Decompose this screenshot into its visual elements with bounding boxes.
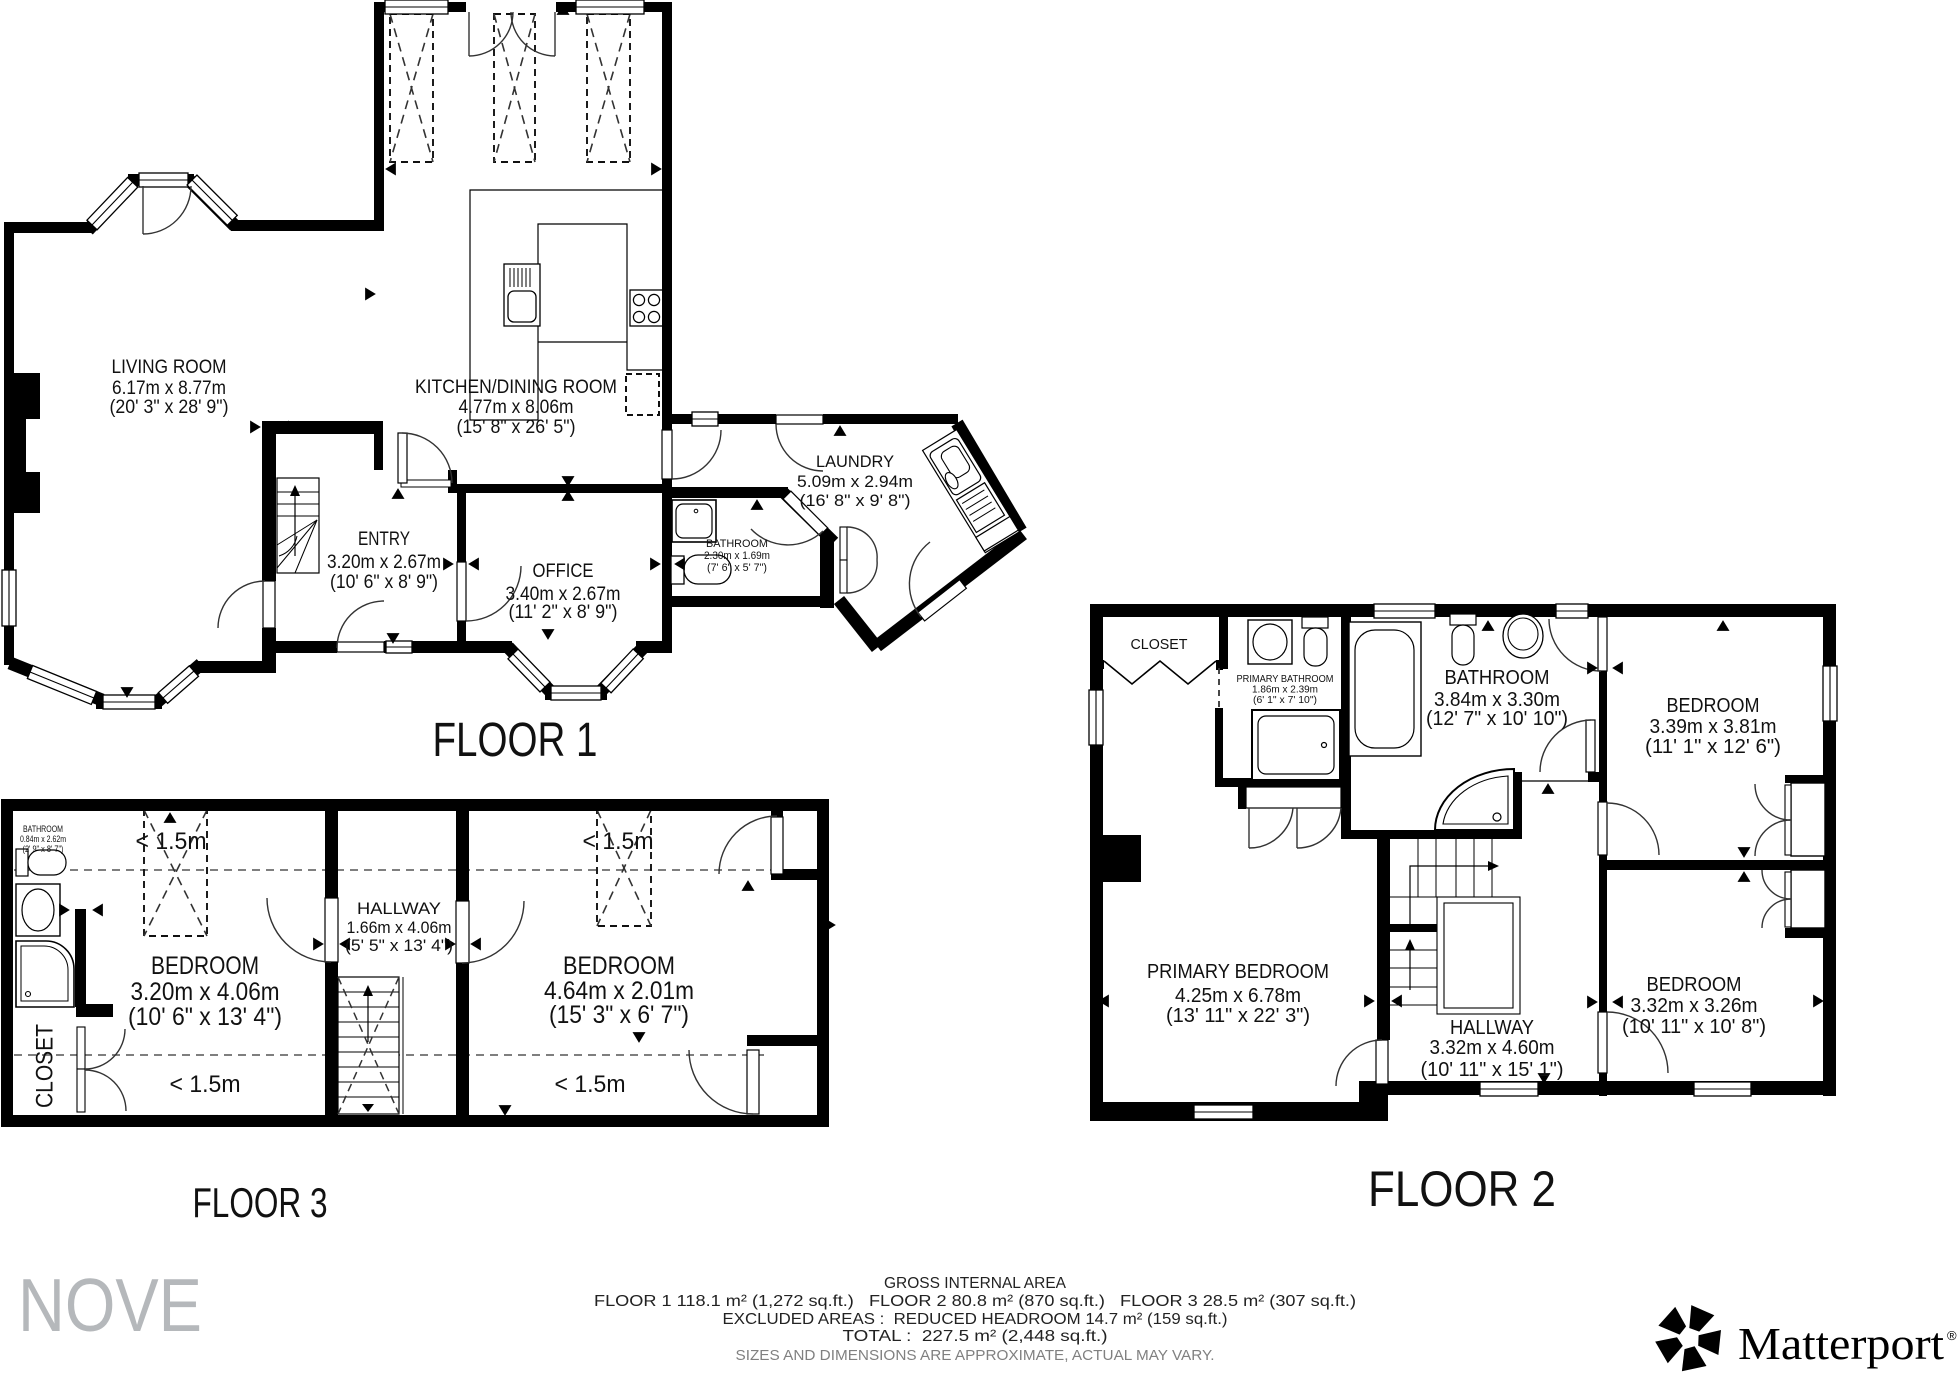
svg-text:3.32m x 3.26m: 3.32m x 3.26m [1631, 995, 1758, 1017]
svg-text:3.32m x 4.60m: 3.32m x 4.60m [1430, 1037, 1555, 1059]
svg-text:HALLWAY: HALLWAY [1450, 1017, 1534, 1039]
svg-text:3.39m x 3.81m: 3.39m x 3.81m [1650, 716, 1777, 738]
svg-text:< 1.5m: < 1.5m [555, 1071, 626, 1098]
svg-text:BEDROOM: BEDROOM [151, 952, 259, 980]
svg-text:CLOSET: CLOSET [31, 1024, 58, 1108]
svg-text:(15' 8" x 26' 5"): (15' 8" x 26' 5") [457, 417, 576, 438]
svg-text:(10' 11" x 10' 8"): (10' 11" x 10' 8") [1622, 1016, 1766, 1038]
svg-text:BATHROOM: BATHROOM [706, 538, 768, 550]
svg-text:BEDROOM: BEDROOM [1667, 695, 1760, 717]
svg-text:CLOSET: CLOSET [1131, 636, 1188, 653]
svg-text:PRIMARY BEDROOM: PRIMARY BEDROOM [1147, 961, 1329, 983]
svg-text:(11' 2" x 8' 9"): (11' 2" x 8' 9") [509, 602, 618, 623]
svg-text:(12' 7" x 10' 10"): (12' 7" x 10' 10") [1426, 708, 1568, 730]
svg-text:< 1.5m: < 1.5m [136, 828, 207, 855]
svg-text:BEDROOM: BEDROOM [563, 952, 675, 980]
svg-text:3.20m x 4.06m: 3.20m x 4.06m [131, 978, 280, 1006]
svg-text:4.77m x 8.06m: 4.77m x 8.06m [459, 397, 574, 418]
svg-text:(6' 1" x 7' 10"): (6' 1" x 7' 10") [1253, 694, 1317, 706]
svg-text:(10' 6" x 8' 9"): (10' 6" x 8' 9") [330, 572, 438, 593]
svg-text:HALLWAY: HALLWAY [357, 899, 441, 918]
svg-text:SIZES AND DIMENSIONS ARE APPRO: SIZES AND DIMENSIONS ARE APPROXIMATE, AC… [736, 1347, 1215, 1364]
svg-text:0.84m x 2.62m: 0.84m x 2.62m [20, 834, 66, 844]
svg-text:6.17m x 8.77m: 6.17m x 8.77m [112, 378, 226, 399]
svg-text:KITCHEN/DINING ROOM: KITCHEN/DINING ROOM [415, 377, 617, 398]
svg-text:OFFICE: OFFICE [533, 561, 594, 582]
svg-text:NOVE: NOVE [18, 1263, 202, 1347]
svg-text:(10' 11" x 15' 1"): (10' 11" x 15' 1") [1421, 1059, 1564, 1081]
svg-text:4.25m x 6.78m: 4.25m x 6.78m [1175, 985, 1301, 1007]
svg-text:(7' 6" x 5' 7"): (7' 6" x 5' 7") [707, 562, 767, 574]
svg-text:BEDROOM: BEDROOM [1647, 974, 1742, 996]
svg-text:FLOOR 1 118.1 m² (1,272 sq.ft.: FLOOR 1 118.1 m² (1,272 sq.ft.) FLOOR 2 … [594, 1293, 1356, 1310]
svg-text:(20' 3" x 28' 9"): (20' 3" x 28' 9") [110, 397, 229, 418]
svg-text:(10' 6" x 13' 4"): (10' 6" x 13' 4") [128, 1003, 282, 1031]
svg-text:5.09m x 2.94m: 5.09m x 2.94m [797, 472, 913, 491]
svg-text:(15' 3" x 6' 7"): (15' 3" x 6' 7") [549, 1001, 689, 1029]
svg-text:GROSS INTERNAL AREA: GROSS INTERNAL AREA [884, 1275, 1066, 1292]
svg-text:LAUNDRY: LAUNDRY [816, 452, 894, 471]
svg-text:1.66m x 4.06m: 1.66m x 4.06m [347, 918, 452, 937]
svg-text:FLOOR 2: FLOOR 2 [1368, 1161, 1556, 1217]
svg-text:(13' 11" x 22' 3"): (13' 11" x 22' 3") [1166, 1005, 1310, 1027]
svg-text:< 1.5m: < 1.5m [170, 1071, 241, 1098]
svg-text:BATHROOM: BATHROOM [23, 824, 63, 834]
svg-text:(16' 8" x 9' 8"): (16' 8" x 9' 8") [800, 491, 911, 510]
svg-text:3.20m x 2.67m: 3.20m x 2.67m [327, 552, 441, 573]
svg-text:(5' 5" x 13' 4"): (5' 5" x 13' 4") [345, 936, 453, 955]
svg-text:EXCLUDED AREAS : REDUCED HEAD: EXCLUDED AREAS : REDUCED HEADROOM 14.7 m… [723, 1311, 1228, 1328]
svg-text:(2' 9" x 8' 7"): (2' 9" x 8' 7") [23, 844, 64, 854]
svg-text:LIVING ROOM: LIVING ROOM [112, 357, 227, 378]
svg-text:®: ® [1947, 1328, 1957, 1343]
svg-text:ENTRY: ENTRY [358, 529, 410, 550]
svg-text:Matterport: Matterport [1738, 1318, 1944, 1369]
svg-text:< 1.5m: < 1.5m [583, 828, 654, 855]
svg-text:FLOOR 1: FLOOR 1 [433, 714, 598, 767]
svg-text:FLOOR 3: FLOOR 3 [193, 1179, 328, 1226]
svg-text:BATHROOM: BATHROOM [1445, 667, 1550, 689]
svg-text:2.30m x 1.69m: 2.30m x 1.69m [704, 550, 770, 562]
svg-text:(11' 1" x 12' 6"): (11' 1" x 12' 6") [1645, 736, 1781, 758]
svg-text:TOTAL : 227.5 m² (2,448 sq.ft: TOTAL : 227.5 m² (2,448 sq.ft.) [843, 1328, 1108, 1345]
